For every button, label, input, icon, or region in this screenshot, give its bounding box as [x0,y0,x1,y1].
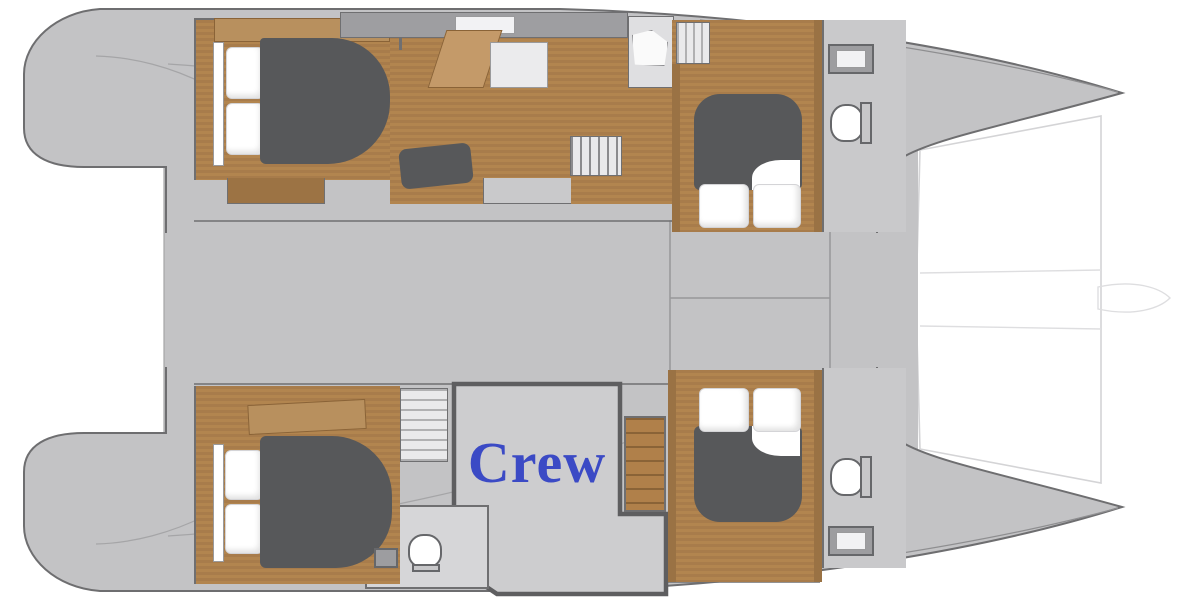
salon-step-down [483,178,571,204]
port-forward-stairs [676,22,710,64]
port-head-toilet [830,104,864,142]
crew-head-toilet-base [412,564,440,572]
bowsprit [1098,284,1170,312]
starboard-head-toilet-tank [860,456,872,498]
starboard-forward-bed-pillow [753,388,801,432]
port-forward-cabin-wall [814,20,822,232]
port-forward-bed-pillow [699,184,749,228]
port-forward-cabin-wall [672,64,680,232]
starboard-forward-cabin-wall [668,370,676,582]
port-head-sink-basin [836,50,866,68]
port-aft-bed-pillow [226,47,264,99]
starboard-aft-bed-headboard [213,444,224,562]
bow-trampoline [916,116,1101,483]
starboard-head-toilet [830,458,864,496]
port-forward-bed-pillow [753,184,801,228]
crew-head-sink [374,548,398,568]
starboard-head-sink-basin [836,532,866,550]
galley-cabinet [490,42,548,88]
starboard-companionway-stairs [400,388,448,462]
crew-head-toilet [408,534,442,568]
starboard-aft-bed-pillow [225,450,263,500]
starboard-forward-bed-pillow [699,388,749,432]
salon-locker [570,136,622,176]
catamaran-deck-plan: Crew [0,0,1200,600]
port-aft-bed-mattress [260,38,390,164]
starboard-aft-bed-mattress [260,436,392,568]
salon-seat [398,142,474,189]
crew-quarters-label: Crew [452,420,622,504]
port-aft-bed-pillow [226,103,264,155]
starboard-aft-bed-pillow [225,504,263,554]
port-aft-cabin-step [227,178,325,204]
starboard-forward-cabin-wall [814,370,822,582]
port-head-toilet-tank [860,102,872,144]
port-aft-bed-headboard [213,42,224,166]
starboard-aft-cabin-shelf [247,399,366,435]
crew-quarters-stairs [624,416,666,512]
